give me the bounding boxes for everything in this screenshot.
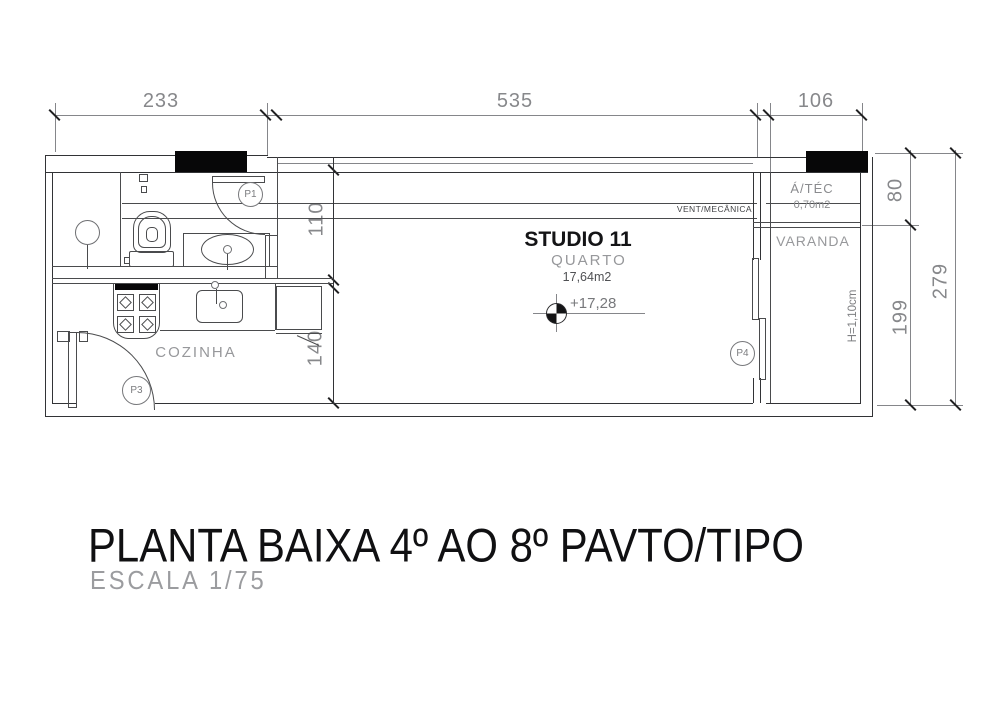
cozinha-label: COZINHA <box>155 344 237 361</box>
wall-line <box>52 172 53 404</box>
dim-extension-line <box>862 103 863 152</box>
door-tag-p4-label: P4 <box>736 348 748 359</box>
vent-band-line <box>122 218 757 219</box>
atec-area-label: 0,70m2 <box>794 199 831 211</box>
studio-left-wall <box>333 157 334 403</box>
sink-stem <box>227 254 228 270</box>
door-leaf-p1 <box>212 176 265 183</box>
fridge <box>276 286 322 330</box>
dim-extension-line <box>267 103 268 156</box>
level-marker-icon <box>546 303 567 324</box>
wall-line <box>155 403 753 404</box>
dim-label-233: 233 <box>143 90 179 113</box>
toilet-tank <box>129 251 174 267</box>
dim-extension-line <box>757 103 758 158</box>
studio-room-subtitle: QUARTO <box>551 252 627 269</box>
sink-drain-icon <box>223 245 232 254</box>
dim-extension-line <box>877 405 963 406</box>
dim-label-199: 199 <box>890 299 913 335</box>
varanda-label: VARANDA <box>776 233 850 249</box>
door-tag-p1-label: P1 <box>244 189 256 200</box>
varanda-height-note: H=1,10cm <box>847 290 859 343</box>
vent-mecanica-label: VENT/MECÂNICA <box>677 204 752 214</box>
door-tag-p4: P4 <box>730 341 755 366</box>
sink-drain-icon <box>219 301 227 309</box>
dim-line-right-inner <box>910 150 911 405</box>
dim-label-80: 80 <box>885 178 908 202</box>
faucet-icon <box>211 281 219 289</box>
door-leaf-p3 <box>68 332 77 408</box>
atec-bottom-wall <box>753 222 860 223</box>
wall-line <box>872 157 873 417</box>
shower-stem <box>87 245 88 269</box>
bath-kitchen-wall <box>52 283 333 284</box>
door-tag-p3: P3 <box>122 376 151 405</box>
atec-label: Á/TÉC <box>790 181 833 196</box>
door-tag-p3-label: P3 <box>130 385 142 396</box>
varanda-wall <box>753 378 754 403</box>
floor-plan-canvas: 233 535 106 80 199 279 110 140 <box>0 0 1000 707</box>
counter-front-line <box>160 330 275 331</box>
sliding-door-panel <box>752 258 759 320</box>
atec-bottom-wall <box>753 227 860 228</box>
dim-extension-line <box>770 103 771 172</box>
wall-fixture-mark <box>139 174 148 182</box>
door-hinge-mark <box>79 331 88 342</box>
dim-label-106: 106 <box>798 90 834 113</box>
dim-line-right-outer <box>955 150 956 405</box>
dim-extension-line <box>55 103 56 152</box>
column-black-left <box>175 151 247 172</box>
fridge-shelf-line <box>276 333 322 334</box>
wall-line <box>45 155 46 417</box>
window-glazing-line <box>277 163 753 164</box>
toilet-drain <box>146 227 158 242</box>
studio-room-area: 17,64m2 <box>563 270 612 284</box>
bath-kitchen-wall <box>52 278 333 279</box>
wall-line <box>860 172 861 404</box>
varanda-wall <box>753 172 754 260</box>
drawing-title: PLANTA BAIXA 4º AO 8º PAVTO/TIPO <box>88 518 804 573</box>
level-value: +17,28 <box>570 295 616 312</box>
dim-line-top <box>55 115 862 116</box>
varanda-inner-wall <box>770 172 771 403</box>
dim-label-279: 279 <box>930 263 953 299</box>
wall-line <box>45 416 872 417</box>
column-black-right <box>806 151 868 172</box>
studio-room-title: STUDIO 11 <box>524 228 631 252</box>
bath-wall-line <box>277 157 278 278</box>
wall-line <box>45 172 868 173</box>
dim-label-535: 535 <box>497 90 533 113</box>
dim-extension-line <box>875 153 963 154</box>
shower-partition-wall <box>120 172 121 267</box>
sliding-door-panel <box>759 318 766 380</box>
wall-fixture-mark <box>141 186 147 193</box>
door-tag-p1: P1 <box>238 182 263 207</box>
faucet-stem <box>216 289 217 304</box>
wall-line <box>267 157 868 158</box>
door-hinge-mark <box>57 331 70 342</box>
toilet-valve <box>124 257 130 264</box>
varanda-wall <box>760 378 761 403</box>
stove-panel-black <box>115 284 158 290</box>
shower-head-icon <box>75 220 100 245</box>
drawing-scale: ESCALA 1/75 <box>90 566 267 596</box>
varanda-wall <box>760 172 761 260</box>
dim-label-110: 110 <box>306 202 329 237</box>
wall-line <box>766 403 860 404</box>
dim-label-140: 140 <box>305 330 328 366</box>
